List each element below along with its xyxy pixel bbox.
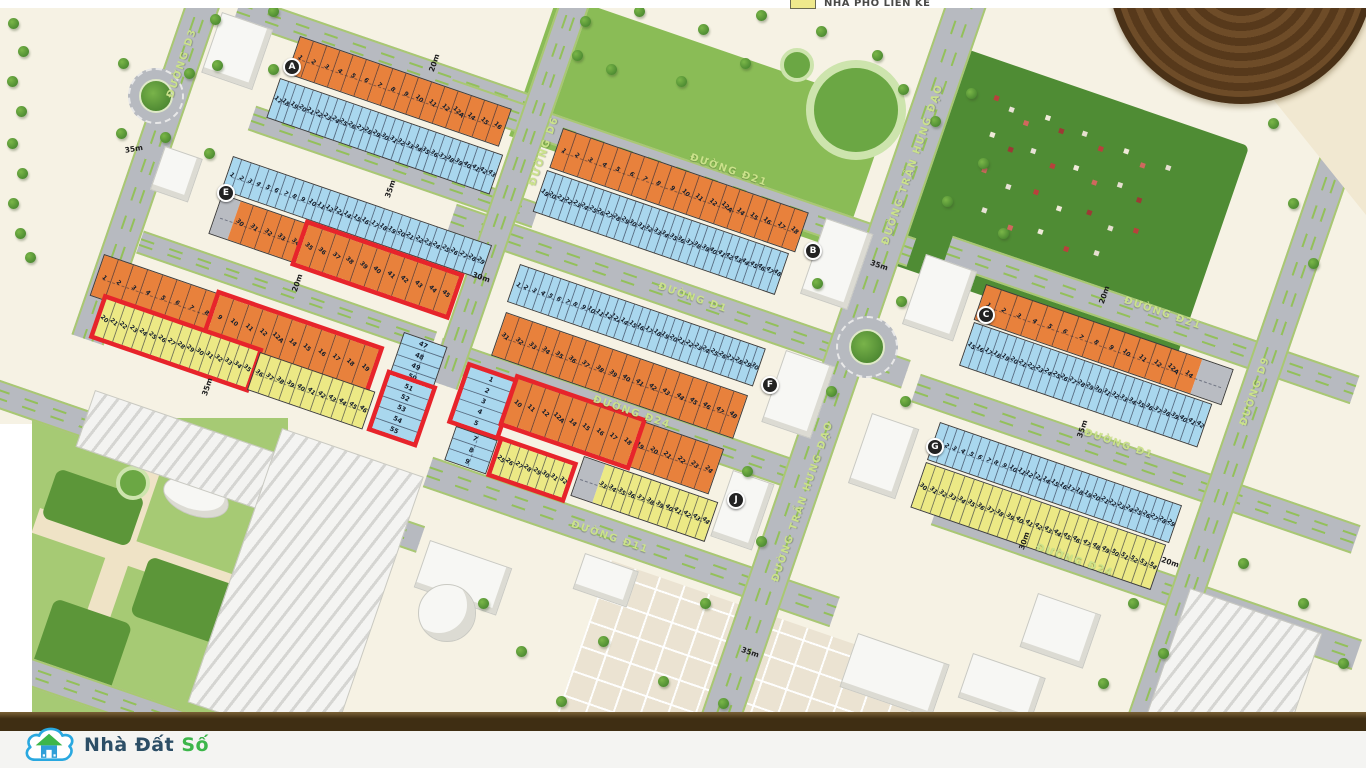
- tree: [898, 84, 909, 95]
- block-label-E: E: [217, 184, 235, 202]
- tree: [116, 128, 127, 139]
- tree: [942, 196, 953, 207]
- top-whitespace: [0, 0, 1366, 8]
- tree: [8, 18, 19, 29]
- page-edge: [0, 424, 32, 716]
- tree: [1268, 118, 1279, 129]
- tree: [1338, 658, 1349, 669]
- brand-name-suffix: Số: [181, 734, 209, 756]
- tree: [25, 252, 36, 263]
- tree: [478, 598, 489, 609]
- tree: [210, 14, 221, 25]
- tree: [15, 228, 26, 239]
- tree: [556, 696, 567, 707]
- tree: [900, 396, 911, 407]
- tree: [7, 138, 18, 149]
- tree: [572, 50, 583, 61]
- tree: [740, 58, 751, 69]
- tree: [18, 46, 29, 57]
- cloud-house-icon: [22, 724, 76, 765]
- tree: [698, 24, 709, 35]
- tree: [676, 76, 687, 87]
- master-plan-map: NHÀ PHỐ LIÊN KẾ Nhà Đất Số ĐƯỜNG D3ĐƯỜNG…: [0, 0, 1366, 768]
- legend-swatch-yellow: [790, 0, 816, 9]
- tree: [658, 676, 669, 687]
- tree: [756, 10, 767, 21]
- tree: [268, 64, 279, 75]
- tree: [8, 198, 19, 209]
- tree: [1128, 598, 1139, 609]
- building: [573, 553, 639, 607]
- tree: [1298, 598, 1309, 609]
- roundabout-green-island: [849, 329, 885, 365]
- tree: [606, 64, 617, 75]
- tree: [816, 26, 827, 37]
- park-fountain: [116, 466, 150, 500]
- tree: [1098, 678, 1109, 689]
- tree: [1288, 198, 1299, 209]
- building: [1019, 593, 1101, 669]
- tree: [700, 598, 711, 609]
- tree: [580, 16, 591, 27]
- block-label-B: B: [804, 242, 822, 260]
- tree: [756, 536, 767, 547]
- tree: [742, 466, 753, 477]
- tree: [1158, 648, 1169, 659]
- block-label-C: C: [977, 306, 995, 324]
- legend: NHÀ PHỐ LIÊN KẾ: [790, 0, 931, 9]
- tree: [160, 132, 171, 143]
- tree: [978, 158, 989, 169]
- block-label-F: F: [761, 376, 779, 394]
- park-plaza-small-ring: [780, 48, 814, 82]
- tree: [204, 148, 215, 159]
- tree: [1238, 558, 1249, 569]
- building: [848, 413, 919, 499]
- park-plaza-ring: [806, 60, 906, 160]
- brand-name-prefix: Nhà Đất: [84, 734, 174, 756]
- block-label-A: A: [283, 58, 301, 76]
- tree: [826, 386, 837, 397]
- tree: [896, 296, 907, 307]
- lot-strip-L4: 474849505152535455: [371, 332, 448, 443]
- brand-logo: Nhà Đất Số: [22, 724, 209, 765]
- dome-building: [418, 584, 476, 642]
- tree: [872, 50, 883, 61]
- tree: [7, 76, 18, 87]
- distance-marker: 35m: [383, 179, 397, 199]
- tree: [812, 278, 823, 289]
- block-label-G: G: [926, 438, 944, 456]
- tree: [1308, 258, 1319, 269]
- tree: [16, 106, 27, 117]
- brand-name: Nhà Đất Số: [84, 734, 209, 756]
- tree: [118, 58, 129, 69]
- tree: [516, 646, 527, 657]
- legend-label: NHÀ PHỐ LIÊN KẾ: [824, 0, 931, 9]
- tree: [998, 228, 1009, 239]
- tree: [966, 88, 977, 99]
- tree: [17, 168, 28, 179]
- distance-marker: 35m: [200, 377, 214, 397]
- block-label-J: J: [727, 491, 745, 509]
- distance-marker: 20m: [1160, 555, 1180, 569]
- tree: [212, 60, 223, 71]
- tree: [718, 698, 729, 709]
- tree: [598, 636, 609, 647]
